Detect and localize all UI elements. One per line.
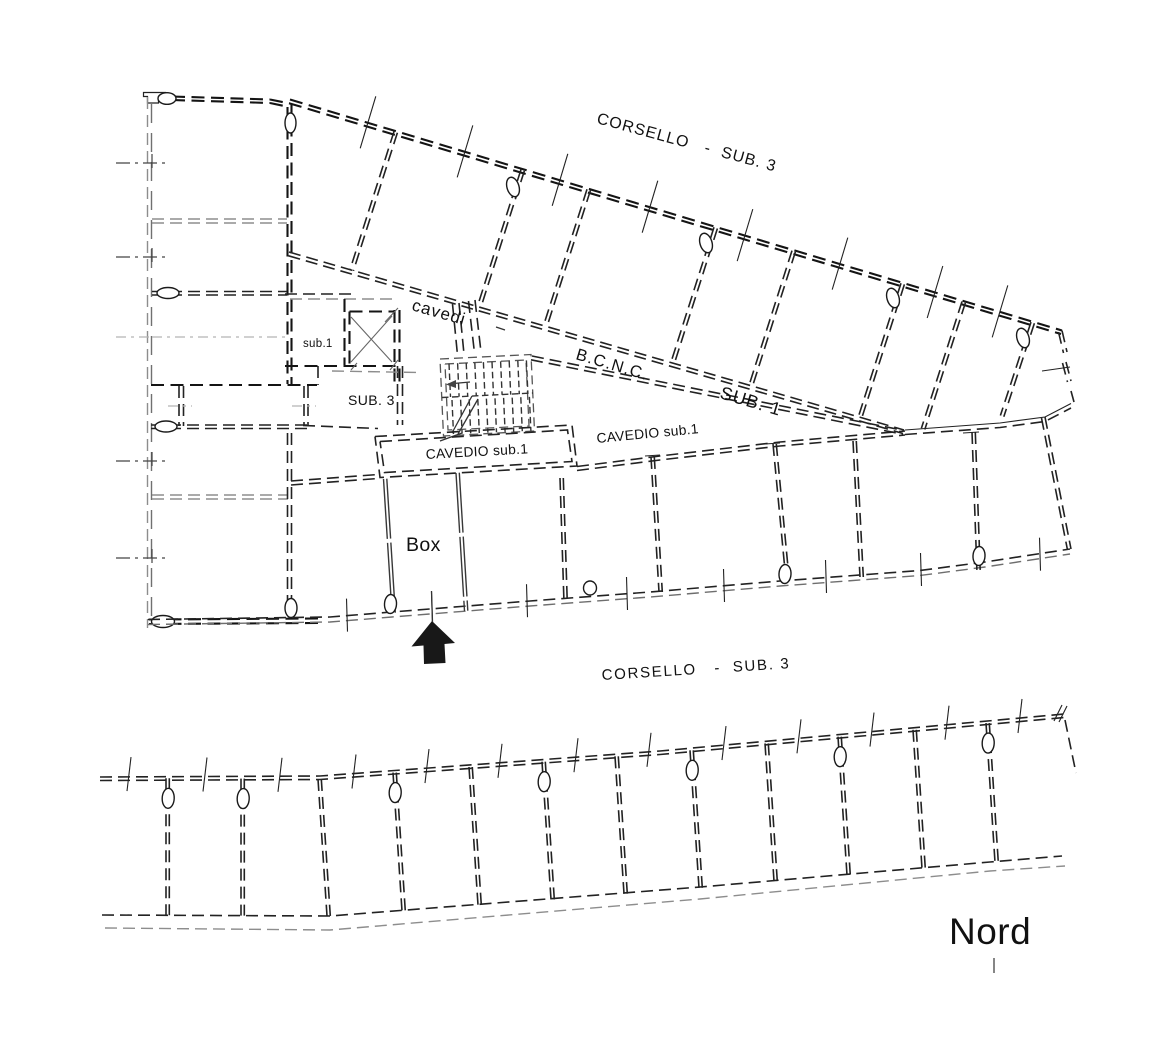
svg-text:Box: Box [406,534,441,556]
svg-text:sub.1: sub.1 [303,338,333,350]
svg-text:SUB. 3: SUB. 3 [348,392,395,408]
svg-text:Nord: Nord [949,911,1031,952]
